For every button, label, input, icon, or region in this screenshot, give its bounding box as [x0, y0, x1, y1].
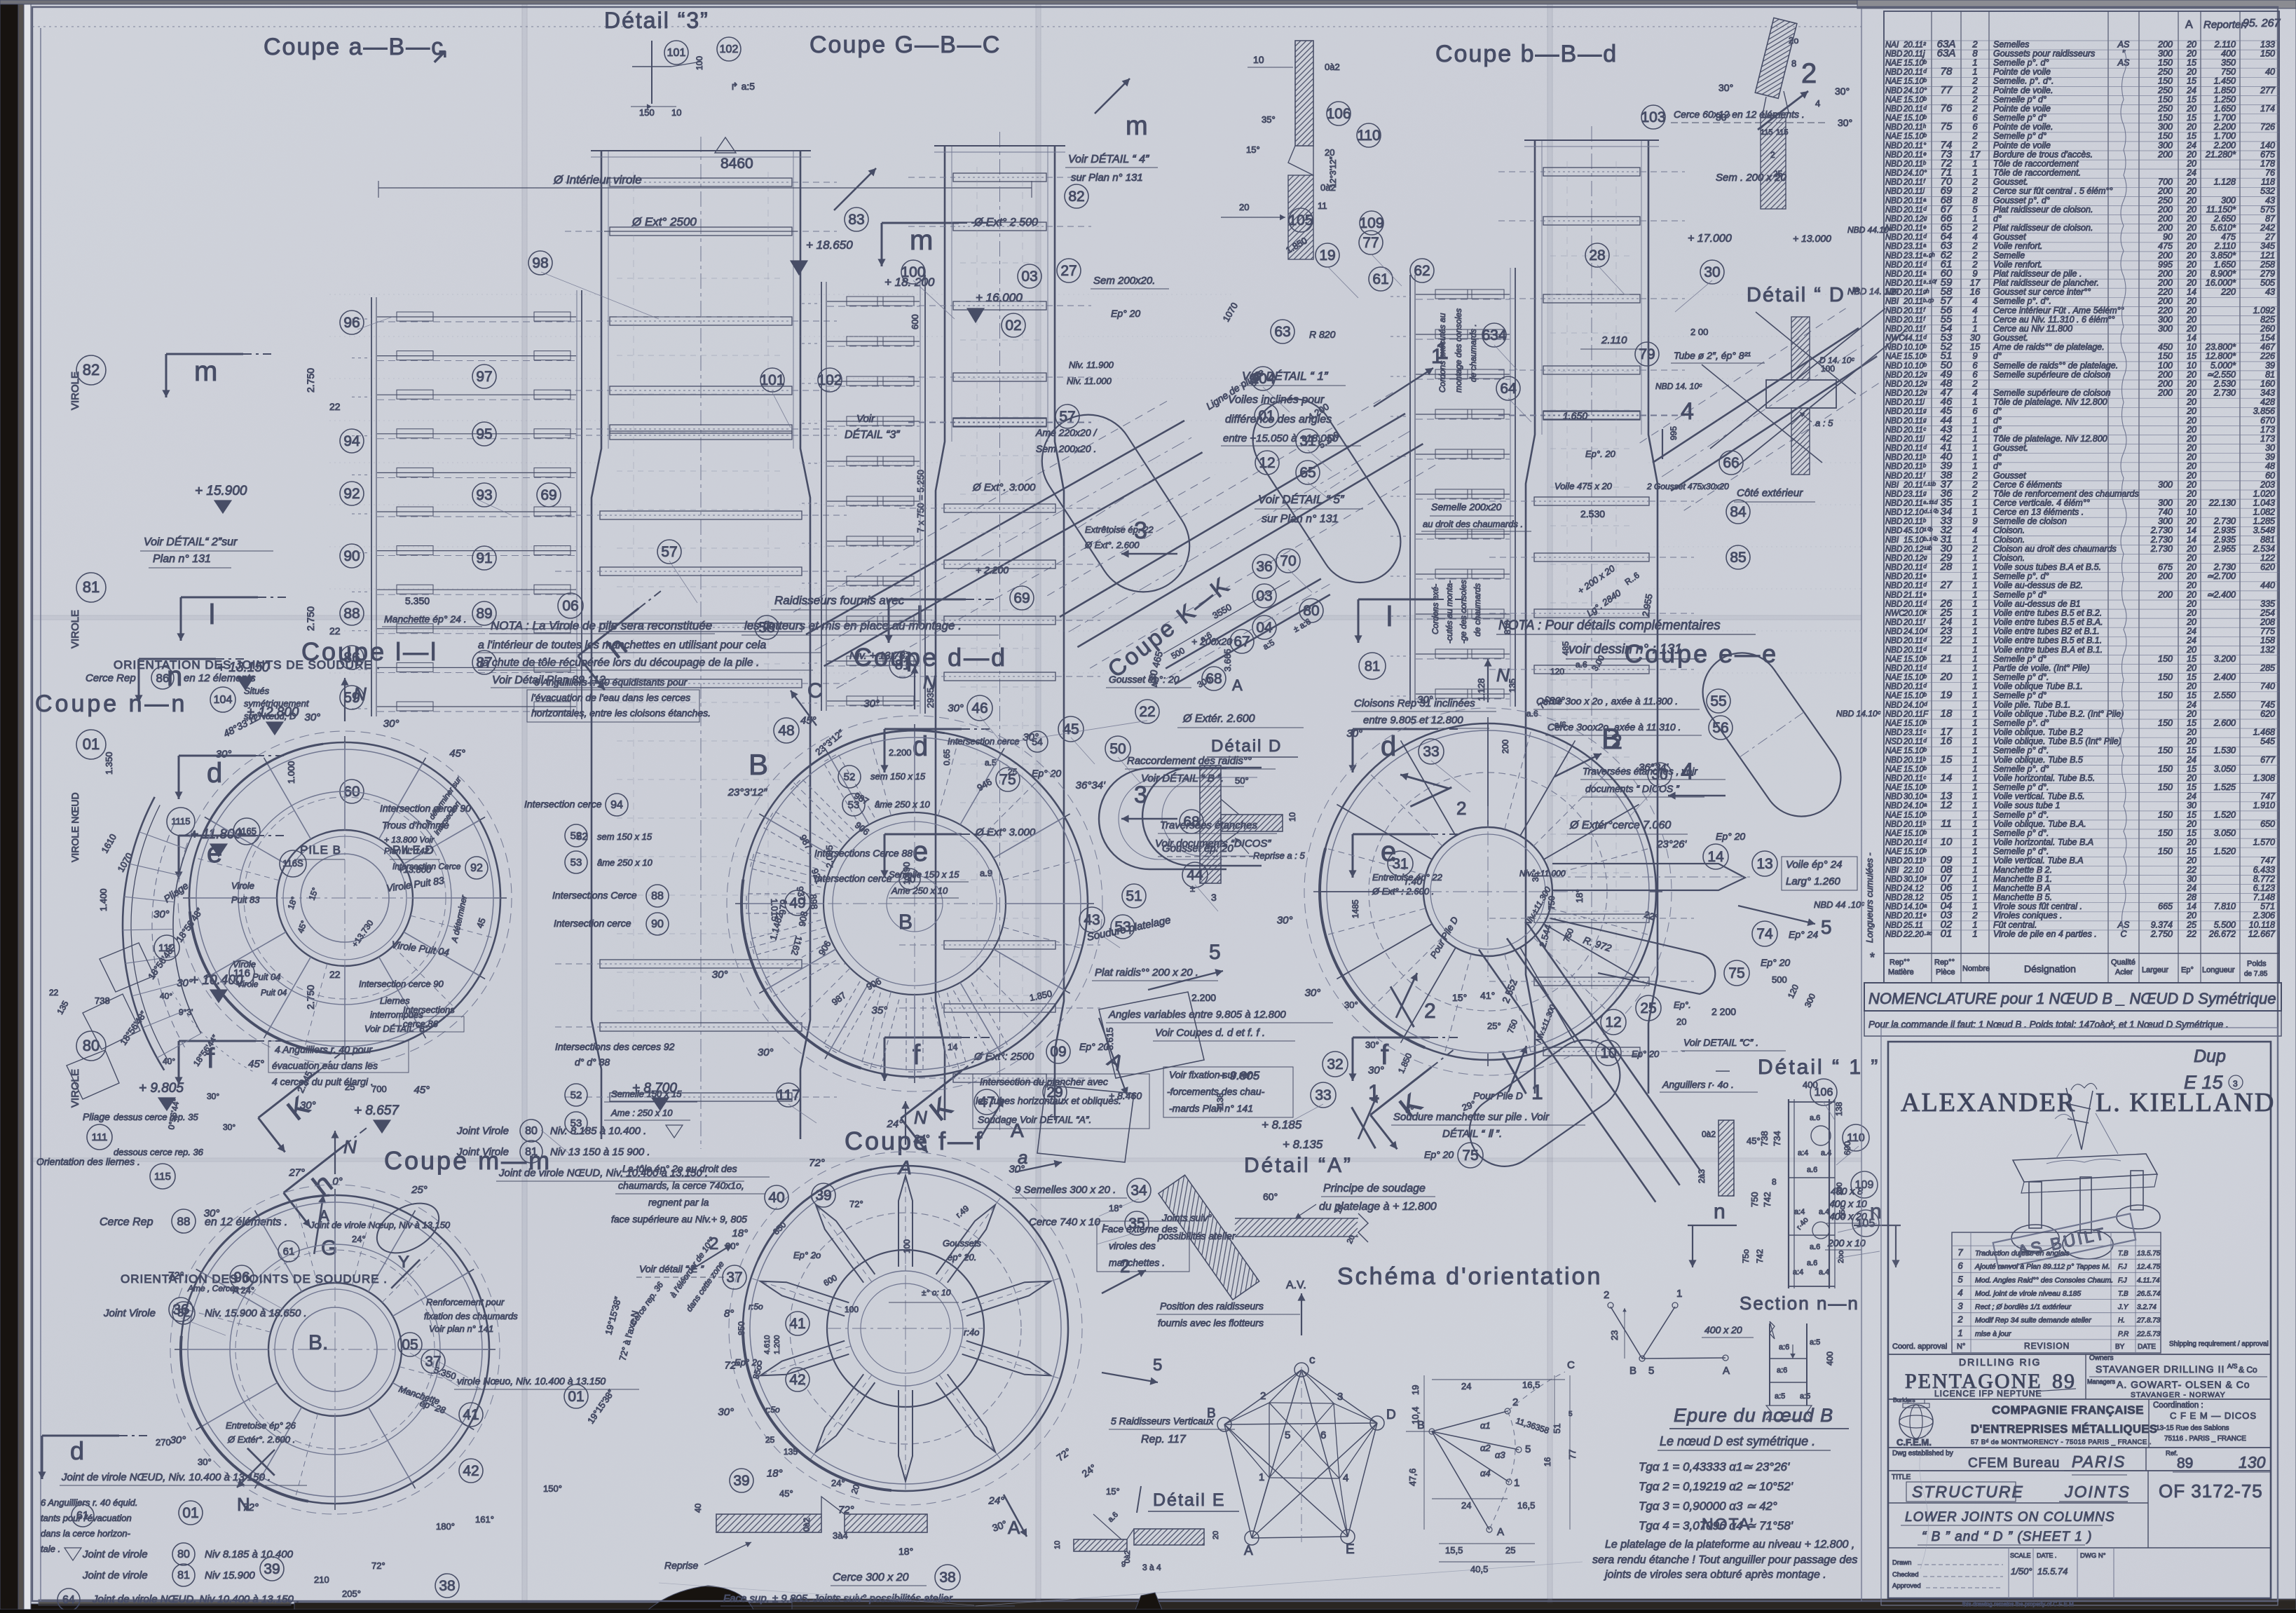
svg-text:12: 12 — [1941, 799, 1953, 811]
svg-text:Tôle de platelage. Niv 12.800: Tôle de platelage. Niv 12.800 — [1993, 434, 2107, 444]
svg-text:8°: 8° — [724, 1307, 734, 1319]
svg-text:118: 118 — [2261, 177, 2275, 187]
svg-text:dessus cerce rep. 35: dessus cerce rep. 35 — [114, 1112, 198, 1122]
svg-text:10.10ᵇ: 10.10ᵇ — [1904, 362, 1927, 370]
svg-text:20.11ᵇ: 20.11ᵇ — [1903, 160, 1927, 168]
svg-text:208: 208 — [2260, 618, 2275, 627]
svg-text:Gousset sur cerce inter°°: Gousset sur cerce inter°° — [1993, 287, 2091, 297]
svg-text:475: 475 — [2221, 232, 2236, 242]
svg-text:Plat raidisseur de cloison.: Plat raidisseur de cloison. — [1993, 205, 2093, 215]
svg-text:NBD: NBD — [1885, 170, 1902, 178]
svg-text:Voile 475 x 20: Voile 475 x 20 — [1554, 481, 1613, 491]
svg-text:Ø Ext° 3.000: Ø Ext° 3.000 — [975, 826, 1036, 838]
svg-text:174: 174 — [2260, 104, 2275, 114]
svg-text:Intersection cerce: Intersection cerce — [814, 873, 892, 884]
svg-text:8460: 8460 — [720, 156, 753, 172]
svg-text:2.110: 2.110 — [1601, 334, 1627, 346]
svg-text:Larg° 1.260: Larg° 1.260 — [1786, 876, 1840, 887]
svg-text:Dwg established by: Dwg established by — [1892, 1450, 1953, 1457]
svg-text:Gousset: Gousset — [1993, 232, 2026, 242]
svg-text:2.730: 2.730 — [2213, 562, 2236, 572]
svg-text:-mards Plan n° 141: -mards Plan n° 141 — [1169, 1103, 1253, 1114]
svg-text:80: 80 — [525, 1125, 538, 1137]
svg-text:11: 11 — [1318, 200, 1327, 211]
svg-text:a:4: a:4 — [1793, 1268, 1803, 1277]
svg-text:61: 61 — [1372, 271, 1388, 287]
svg-text:20.11ᵈ: 20.11ᵈ — [1903, 444, 1927, 453]
svg-text:2 Gousset 475x30x20: 2 Gousset 475x30x20 — [1646, 482, 1729, 491]
svg-text:1.128: 1.128 — [2214, 177, 2236, 187]
svg-text:Semelle p°. d°: Semelle p°. d° — [1993, 571, 2049, 581]
svg-text:24.10ᵃ: 24.10ᵃ — [1903, 802, 1927, 810]
svg-text:NBD: NBD — [1885, 435, 1902, 444]
svg-text:STAVANGER - NORWAY: STAVANGER - NORWAY — [2131, 1391, 2226, 1399]
svg-text:NBD: NBD — [1885, 701, 1902, 709]
svg-text:NBD: NBD — [1885, 756, 1902, 765]
svg-text:15: 15 — [2187, 847, 2196, 857]
svg-text:51: 51 — [1552, 1424, 1562, 1434]
svg-text:NBD: NBD — [1885, 683, 1902, 691]
svg-text:d°: d° — [1993, 461, 2002, 471]
svg-text:a.6: a.6 — [1810, 1243, 1820, 1251]
svg-text:NBD: NBD — [1885, 665, 1902, 673]
svg-text:15.10ᵇ: 15.10ᵇ — [1904, 829, 1927, 838]
svg-text:75: 75 — [1728, 965, 1744, 981]
svg-text:NBD: NBD — [1885, 876, 1902, 884]
svg-text:154: 154 — [2260, 333, 2275, 343]
svg-text:86: 86 — [156, 672, 170, 685]
svg-text:200: 200 — [2157, 297, 2173, 306]
svg-text:Rep. 117: Rep. 117 — [1141, 1434, 1187, 1445]
svg-text:Voile renfort.: Voile renfort. — [1993, 259, 2042, 269]
svg-text:1: 1 — [1957, 1328, 1962, 1338]
svg-text:m: m — [1126, 111, 1148, 141]
svg-text:200: 200 — [2157, 205, 2173, 215]
svg-text:69: 69 — [1013, 590, 1030, 606]
svg-text:B: B — [1629, 1365, 1636, 1377]
svg-text:A: A — [1244, 1544, 1253, 1558]
svg-text:150: 150 — [2158, 131, 2173, 141]
svg-text:116S: 116S — [282, 858, 303, 869]
svg-text:Drawn: Drawn — [1892, 1559, 1911, 1567]
svg-text:15.10ᵇ·¹⁰ᵇ: 15.10ᵇ·¹⁰ᵇ — [1904, 536, 1939, 545]
svg-text:Cerce intérieur Fût . Ame 5élé: Cerce intérieur Fût . Ame 5élém°° — [1993, 306, 2124, 315]
svg-text:Ø Ext°. 3.000: Ø Ext°. 3.000 — [972, 482, 1036, 494]
svg-text:Voir plan n° 141: Voir plan n° 141 — [429, 1323, 493, 1334]
svg-text:20: 20 — [2186, 618, 2196, 627]
svg-text:21.11ᵉ: 21.11ᵉ — [1903, 591, 1927, 599]
svg-text:Voile sous tube 1: Voile sous tube 1 — [1993, 801, 2060, 810]
svg-text:91: 91 — [476, 550, 492, 566]
svg-text:3.548: 3.548 — [2253, 526, 2275, 536]
svg-text:L. KIELLAND: L. KIELLAND — [2096, 1088, 2275, 1117]
svg-text:0°: 0° — [332, 1176, 342, 1187]
svg-text:25.11: 25.11 — [1903, 921, 1923, 930]
svg-text:Rep°°: Rep°° — [1934, 958, 1955, 967]
svg-text:Voile oblique. Tube B.5: Voile oblique. Tube B.5 — [1993, 755, 2083, 765]
svg-text:NBD: NBD — [1885, 509, 1902, 517]
svg-text:24: 24 — [2186, 700, 2196, 709]
svg-text:745: 745 — [2260, 700, 2275, 709]
svg-text:30°: 30° — [207, 1091, 219, 1101]
svg-text:39: 39 — [2265, 360, 2275, 370]
svg-text:Sem 200x20.: Sem 200x20. — [1093, 275, 1155, 287]
svg-text:Ep° 20: Ep° 20 — [1761, 957, 1790, 968]
svg-text:97: 97 — [476, 369, 492, 385]
svg-text:20: 20 — [2186, 479, 2196, 489]
svg-text:254: 254 — [2260, 608, 2275, 618]
svg-text:Semelle p° d°.: Semelle p° d°. — [1993, 847, 2049, 857]
svg-text:Fût central.: Fût central. — [1993, 920, 2037, 930]
svg-text:ép° 20.: ép° 20. — [948, 1252, 976, 1263]
svg-text:Pliage: Pliage — [83, 1111, 110, 1122]
svg-text:PILE B: PILE B — [300, 843, 341, 857]
svg-text:30°: 30° — [1368, 1064, 1384, 1076]
svg-text:100: 100 — [1821, 364, 1835, 374]
svg-text:77: 77 — [1362, 235, 1379, 251]
svg-text:LOWER JOINTS ON COLUMNS: LOWER JOINTS ON COLUMNS — [1905, 1510, 2115, 1525]
svg-text:AS: AS — [2117, 39, 2130, 49]
svg-text:A: A — [897, 1157, 912, 1178]
svg-text:20.11ᵈ: 20.11ᵈ — [1903, 738, 1927, 747]
svg-text:Y: Y — [398, 1253, 409, 1272]
svg-text:5: 5 — [1153, 1356, 1162, 1375]
svg-text:24: 24 — [2186, 791, 2196, 801]
svg-text:300: 300 — [2158, 479, 2173, 489]
svg-text:sera rendu étanche ! Tout ang: sera rendu étanche ! Tout anguiller pour… — [1592, 1554, 1857, 1566]
svg-text:20: 20 — [2186, 489, 2196, 498]
svg-text:2: 2 — [1801, 58, 1817, 89]
svg-text:150: 150 — [2158, 113, 2173, 123]
svg-text:OF 3172-75: OF 3172-75 — [2159, 1481, 2263, 1502]
svg-text:27.8.73: 27.8.73 — [2136, 1317, 2161, 1325]
svg-text:20: 20 — [2186, 315, 2196, 325]
svg-text:NBI: NBI — [1885, 536, 1899, 545]
svg-text:Qualité: Qualité — [2111, 958, 2136, 967]
svg-text:A/S: A/S — [2227, 1363, 2238, 1370]
svg-text:150: 150 — [2158, 847, 2173, 857]
svg-text:117: 117 — [777, 1087, 800, 1103]
svg-text:a.6: a.6 — [1576, 660, 1587, 669]
svg-text:220: 220 — [2157, 287, 2173, 297]
svg-text:18°: 18° — [732, 1227, 748, 1239]
svg-text:57: 57 — [1059, 409, 1075, 425]
svg-text:39: 39 — [264, 1561, 280, 1577]
svg-text:285: 285 — [2260, 663, 2275, 673]
svg-text:4.610: 4.610 — [763, 1335, 772, 1354]
svg-text:horizontales, entre les cloiso: horizontales, entre les cloisons étanche… — [531, 707, 711, 719]
svg-text:250: 250 — [2157, 104, 2173, 114]
svg-text:20.11ᶠ: 20.11ᶠ — [1903, 316, 1926, 325]
svg-text:E: E — [1346, 1542, 1355, 1557]
svg-text:650: 650 — [2260, 819, 2275, 829]
svg-text:20: 20 — [2186, 470, 2196, 480]
svg-text:12.4.75: 12.4.75 — [2137, 1263, 2161, 1271]
svg-text:20: 20 — [2186, 122, 2196, 132]
svg-text:20.10ᵏ: 20.10ᵏ — [1903, 609, 1927, 618]
svg-text:Virole: Virole — [231, 880, 254, 891]
svg-text:NOTA : Pour détails complément: NOTA : Pour détails complémentaires — [1498, 618, 1721, 633]
svg-text:27°: 27° — [288, 1167, 305, 1179]
svg-text:3.856: 3.856 — [2253, 407, 2275, 416]
svg-text:A.V.: A.V. — [1286, 1279, 1306, 1291]
svg-text:467: 467 — [2260, 342, 2276, 352]
svg-text:5 Raidisseurs Verticaux: 5 Raidisseurs Verticaux — [1111, 1415, 1215, 1427]
svg-text:20.11ᶜ: 20.11ᶜ — [1903, 426, 1927, 435]
svg-text:6: 6 — [1320, 1429, 1326, 1441]
svg-text:27: 27 — [1940, 579, 1953, 591]
svg-text:NAE: NAE — [1885, 692, 1902, 700]
svg-text:Face sup. ± 9.805. Joints su: Face sup. ± 9.805. Joints suiv° possibil… — [723, 1593, 953, 1605]
svg-text:A: A — [1497, 1526, 1504, 1538]
svg-text:this drawing remains the p: this drawing remains the property of C F… — [1962, 1601, 2074, 1607]
svg-text:de chaumards: de chaumards — [1472, 583, 1482, 637]
svg-text:A. GOWART- OLSEN & Co: A. GOWART- OLSEN & Co — [2117, 1379, 2250, 1390]
svg-text:Tôle de renforcement des chaum: Tôle de renforcement des chaumards — [1993, 489, 2139, 498]
svg-text:200: 200 — [2157, 590, 2173, 599]
svg-text:76: 76 — [1941, 102, 1953, 114]
svg-text:24°: 24° — [988, 1495, 1005, 1506]
svg-text:15: 15 — [2187, 690, 2196, 700]
svg-text:67: 67 — [1234, 634, 1250, 650]
svg-text:Semelle p°. d°: Semelle p°. d° — [1993, 718, 2049, 728]
svg-text:400: 400 — [1825, 1352, 1835, 1366]
svg-text:81: 81 — [83, 578, 100, 596]
svg-text:a.6: a.6 — [1807, 1259, 1817, 1267]
svg-text:27: 27 — [2264, 232, 2276, 242]
svg-text:30°: 30° — [712, 969, 728, 981]
svg-text:15: 15 — [2187, 113, 2196, 123]
svg-text:22: 22 — [49, 988, 59, 998]
svg-text:3: 3 — [1337, 1391, 1343, 1403]
svg-text:Rect ; Ø bordiès 1/1 extérie: Rect ; Ø bordiès 1/1 extérieur — [1975, 1303, 2072, 1312]
svg-text:PARIS: PARIS — [2072, 1452, 2126, 1471]
svg-text:en 12 élements: en 12 élements — [184, 672, 256, 684]
svg-text:132: 132 — [2260, 645, 2275, 655]
svg-text:NBD: NBD — [1885, 289, 1902, 297]
svg-text:15: 15 — [2187, 76, 2196, 86]
svg-text:400: 400 — [2221, 49, 2236, 59]
svg-text:a.5: a.5 — [985, 758, 997, 768]
svg-text:20: 20 — [2186, 562, 2196, 572]
svg-text:343: 343 — [2260, 388, 2275, 398]
svg-text:de chaumards .: de chaumards . — [1468, 324, 1478, 382]
svg-text:24: 24 — [2186, 755, 2196, 765]
svg-text:symétriquement: symétriquement — [244, 698, 310, 709]
svg-text:20.11ᶠ: 20.11ᶠ — [1903, 325, 1926, 334]
svg-text:20.11ᵇ: 20.11ᵇ — [1903, 857, 1927, 866]
svg-text:Voile horizontal. Tube B.A: Voile horizontal. Tube B.A — [1993, 838, 2093, 848]
svg-text:Reprise a : 5: Reprise a : 5 — [1253, 850, 1305, 861]
svg-text:NBD: NBD — [1885, 921, 1902, 930]
svg-text:300: 300 — [2221, 196, 2236, 205]
svg-text:20.11ᵉ: 20.11ᵉ — [1903, 573, 1927, 581]
svg-text:22.130: 22.130 — [2208, 498, 2236, 508]
svg-text:Cerce 3oox2o, axée à 11.310 .: Cerce 3oox2o, axée à 11.310 . — [1547, 721, 1681, 733]
svg-text:d°: d° — [1993, 214, 2002, 224]
svg-text:10: 10 — [2187, 342, 2196, 352]
svg-text:NAE: NAE — [1885, 765, 1902, 774]
svg-text:20: 20 — [2186, 553, 2196, 563]
svg-text:NBD: NBD — [1885, 69, 1902, 77]
svg-text:15.10ᵇ: 15.10ᵇ — [1904, 353, 1927, 361]
svg-text:20: 20 — [2186, 911, 2196, 920]
svg-text:27: 27 — [1060, 263, 1077, 279]
svg-text:28: 28 — [1589, 247, 1605, 264]
svg-text:Semelle de raids°° de platelag: Semelle de raids°° de platelage. — [1993, 360, 2118, 370]
svg-text:2.400: 2.400 — [2213, 672, 2236, 682]
svg-text:2.110: 2.110 — [2214, 39, 2236, 49]
svg-text:NBD: NBD — [1885, 820, 1902, 829]
svg-text:ALEXANDER: ALEXANDER — [1901, 1088, 2076, 1117]
svg-text:20.11ᵃ·¹¹ᵈ: 20.11ᵃ·¹¹ᵈ — [1903, 500, 1939, 508]
svg-text:Semelle p° d°.: Semelle p° d°. — [1993, 782, 2049, 792]
svg-text:122: 122 — [2260, 553, 2275, 563]
svg-text:83: 83 — [848, 212, 864, 228]
svg-text:20.11ᵇ·ᵑᵇ: 20.11ᵇ·ᵑᵇ — [1903, 298, 1934, 306]
svg-text:Dup: Dup — [2194, 1047, 2226, 1066]
svg-text:a.4: a.4 — [1819, 1268, 1829, 1277]
svg-text:43: 43 — [1084, 912, 1100, 928]
svg-text:Ame : 250 x 10: Ame : 250 x 10 — [610, 1108, 673, 1118]
svg-text:Voile entre tubes B.5 et B.A.: Voile entre tubes B.5 et B.A. — [1993, 618, 2103, 627]
svg-text:d° d° 88: d° d° 88 — [575, 1056, 610, 1068]
svg-text:NAE: NAE — [1885, 811, 1902, 819]
svg-text:l: l — [209, 599, 215, 630]
svg-text:10: 10 — [2187, 508, 2196, 517]
svg-text:20.11ᵇ: 20.11ᵇ — [1903, 518, 1927, 526]
svg-text:l'évacuation de l'eau dans les: l'évacuation de l'eau dans les cerces — [531, 692, 690, 703]
svg-text:NBD: NBD — [1885, 619, 1902, 627]
svg-text:3à4: 3à4 — [833, 1530, 848, 1541]
svg-text:20.12ᵍ: 20.12ᵍ — [1903, 390, 1927, 398]
svg-text:+ 200x20: + 200x20 — [1191, 636, 1232, 647]
svg-text:75: 75 — [1462, 1148, 1478, 1164]
svg-text:12.800*: 12.800* — [2206, 351, 2236, 361]
svg-text:+ 8.135: + 8.135 — [1283, 1138, 1323, 1151]
svg-text:300: 300 — [2158, 122, 2173, 132]
svg-text:1.650: 1.650 — [1563, 410, 1587, 421]
svg-text:130: 130 — [2239, 1453, 2266, 1471]
svg-text:20: 20 — [2186, 819, 2196, 829]
svg-text:15.10ᵇ: 15.10ᵇ — [1904, 747, 1927, 756]
svg-text:COMPAGNIE FRANÇAISE: COMPAGNIE FRANÇAISE — [1992, 1403, 2144, 1417]
svg-text:8.772: 8.772 — [2253, 874, 2275, 884]
svg-text:5: 5 — [1285, 1429, 1290, 1441]
svg-text:Semelle supérieure de cloison: Semelle supérieure de cloison — [1993, 369, 2111, 379]
svg-text:Tgα 1 = 0,43333 α1≃ 23°26': Tgα 1 = 0,43333 α1≃ 23°26' — [1639, 1460, 1790, 1474]
svg-text:Voile oblique. Tube B.5 (Int°: Voile oblique. Tube B.5 (Int° Pile) — [1993, 737, 2121, 747]
svg-text:2.650: 2.650 — [2213, 214, 2236, 224]
svg-text:57 Bᵈ de MONTMORENCY - 75: 57 Bᵈ de MONTMORENCY - 75018 PARIS _ FRA… — [1971, 1438, 2152, 1446]
svg-text:25: 25 — [1773, 169, 1783, 179]
svg-text:20: 20 — [2186, 773, 2196, 783]
svg-text:2.750: 2.750 — [305, 368, 316, 393]
svg-text:4.11.74: 4.11.74 — [2137, 1277, 2160, 1284]
svg-text:87: 87 — [2265, 214, 2276, 224]
svg-text:20: 20 — [2186, 104, 2196, 114]
svg-text:15.10ᵇ: 15.10ᵇ — [1904, 719, 1927, 728]
svg-text:Plat raidisseur de plancher.: Plat raidisseur de plancher. — [1993, 278, 2099, 288]
svg-text:5: 5 — [1957, 1274, 1963, 1284]
svg-text:d: d — [70, 1436, 84, 1465]
svg-text:2.730: 2.730 — [2213, 517, 2236, 526]
svg-text:a : 5: a : 5 — [1815, 418, 1833, 428]
svg-text:250: 250 — [2157, 86, 2173, 95]
svg-text:n: n — [1714, 1200, 1726, 1223]
svg-text:75o: 75o — [1741, 1249, 1751, 1263]
svg-text:22: 22 — [329, 969, 341, 980]
svg-text:30°: 30° — [170, 1434, 186, 1446]
svg-text:NAE: NAE — [1885, 132, 1902, 141]
svg-text:12.10ᵈ·¹⁰ᵇ: 12.10ᵈ·¹⁰ᵇ — [1904, 509, 1939, 517]
svg-text:4 cerces du puit élargi .: 4 cerces du puit élargi . — [272, 1076, 374, 1087]
svg-text:88: 88 — [343, 606, 360, 622]
svg-text:14: 14 — [2187, 526, 2196, 536]
svg-text:738: 738 — [95, 995, 110, 1006]
svg-text:20: 20 — [2186, 186, 2196, 196]
svg-text:Voile au-dessus de B1: Voile au-dessus de B1 — [1993, 599, 2081, 608]
svg-text:NBD: NBD — [1885, 912, 1902, 920]
svg-text:24: 24 — [1461, 1381, 1471, 1391]
svg-text:9°3': 9°3' — [179, 1007, 193, 1017]
svg-text:41°: 41° — [1480, 990, 1495, 1001]
svg-text:a:4: a:4 — [1798, 1149, 1808, 1157]
svg-text:220: 220 — [2220, 287, 2236, 297]
svg-text:22: 22 — [2186, 865, 2196, 875]
svg-text:Semelle: Semelle — [1993, 250, 2025, 260]
svg-text:700: 700 — [371, 1084, 387, 1094]
svg-text:0à2: 0à2 — [802, 1518, 812, 1532]
svg-text:440: 440 — [2260, 580, 2275, 590]
svg-text:24.10ᵈ: 24.10ᵈ — [1903, 628, 1928, 637]
svg-text:20.11ᵈ: 20.11ᵈ — [1903, 665, 1927, 673]
svg-text:22: 22 — [1139, 704, 1155, 720]
svg-text:45°: 45° — [248, 1059, 264, 1070]
svg-text:161°: 161° — [475, 1514, 494, 1525]
svg-text:150: 150 — [2158, 718, 2173, 728]
svg-text:NBD 44 .10ᶜ: NBD 44 .10ᶜ — [1814, 899, 1864, 910]
svg-text:NAE: NAE — [1885, 784, 1902, 792]
svg-text:a.4: a.4 — [1819, 1208, 1829, 1216]
svg-text:742: 742 — [1755, 1249, 1765, 1263]
svg-text:↗: ↗ — [431, 45, 449, 68]
svg-text:Joint de virole: Joint de virole — [82, 1549, 148, 1560]
svg-text:Manchette B 2.: Manchette B 2. — [1993, 865, 2052, 875]
svg-text:Acier: Acier — [2115, 968, 2133, 976]
svg-text:66: 66 — [1723, 455, 1739, 471]
svg-text:20.11ᵈ: 20.11ᵈ — [1903, 69, 1927, 77]
svg-text:5.000*: 5.000* — [2210, 360, 2236, 370]
svg-text:20: 20 — [2186, 369, 2196, 379]
svg-text:21.280*: 21.280* — [2205, 149, 2236, 159]
svg-text:5.350: 5.350 — [405, 595, 430, 606]
svg-text:3: 3 — [1134, 517, 1147, 544]
svg-text:01: 01 — [182, 1505, 198, 1521]
svg-text:Ep° 20: Ep° 20 — [1632, 1049, 1660, 1059]
svg-text:32: 32 — [1327, 1056, 1343, 1073]
svg-text:Tôle de raccordement: Tôle de raccordement — [1993, 158, 2079, 168]
svg-text:138: 138 — [1834, 1102, 1844, 1116]
svg-text:22: 22 — [1940, 634, 1953, 646]
svg-text:250: 250 — [2157, 67, 2173, 77]
svg-text:15.5.74: 15.5.74 — [2037, 1566, 2068, 1577]
svg-text:5.500: 5.500 — [2214, 920, 2236, 930]
svg-text:02: 02 — [1005, 318, 1021, 334]
svg-text:T.B: T.B — [2118, 1290, 2128, 1298]
svg-text:16,5: 16,5 — [1517, 1500, 1535, 1511]
svg-text:NSD: NSD — [1885, 738, 1902, 747]
